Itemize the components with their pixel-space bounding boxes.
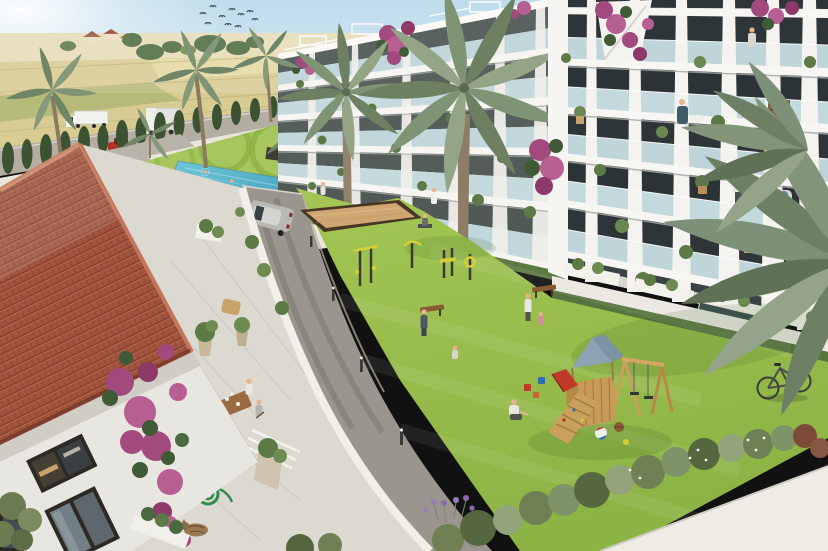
render-image: Aerial render: white modern apartment bl… [0, 0, 828, 551]
